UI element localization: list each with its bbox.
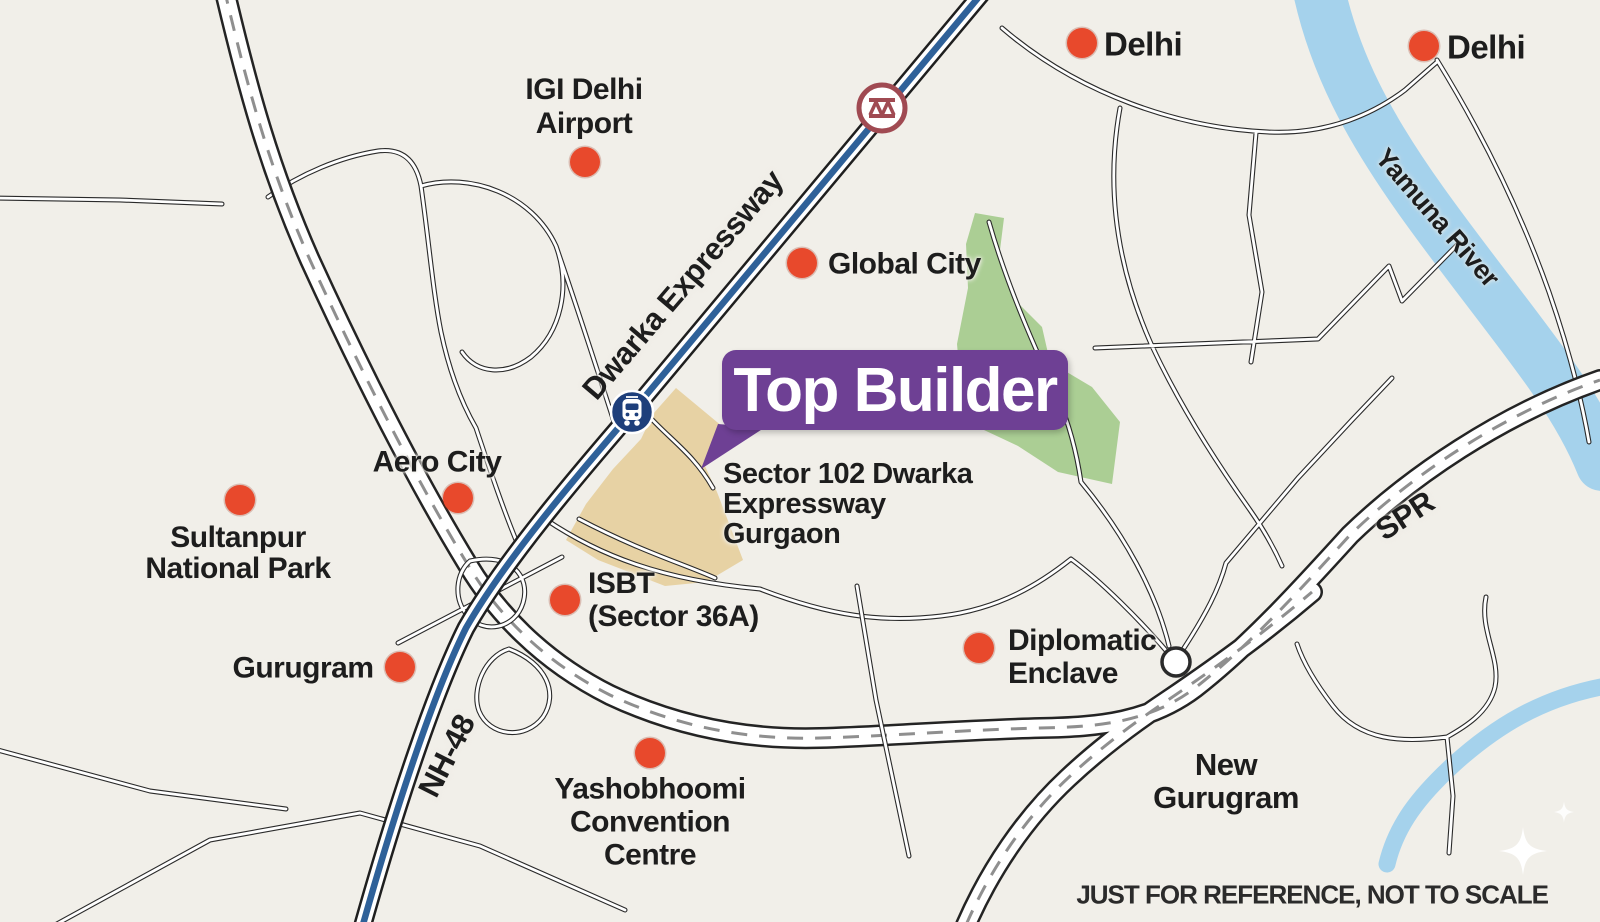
roundabout — [1162, 648, 1190, 676]
disclaimer-text: JUST FOR REFERENCE, NOT TO SCALE — [1076, 880, 1548, 911]
map-canvas: DelhiDelhiIGI Delhi AirportGlobal CityAe… — [0, 0, 1600, 922]
delhi-metro-logo-icon — [859, 85, 905, 131]
project-banner-label: Top Builder — [733, 355, 1056, 426]
project-banner: Top Builder — [722, 350, 1068, 430]
stream — [1387, 686, 1600, 864]
metro-station-icon — [611, 391, 653, 433]
map-artwork — [0, 0, 1600, 922]
road-network — [0, 28, 1589, 922]
sparkle-icon — [1499, 801, 1575, 875]
